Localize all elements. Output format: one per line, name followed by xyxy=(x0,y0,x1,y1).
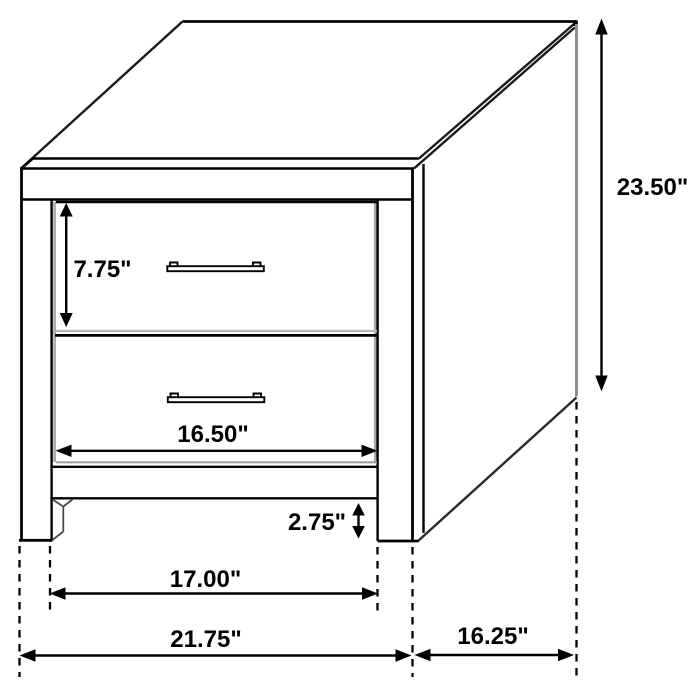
svg-text:16.50": 16.50" xyxy=(177,421,248,448)
svg-text:21.75": 21.75" xyxy=(170,626,241,653)
svg-text:23.50": 23.50" xyxy=(617,174,688,201)
svg-text:7.75": 7.75" xyxy=(73,256,131,283)
svg-text:17.00": 17.00" xyxy=(170,566,241,593)
svg-text:16.25": 16.25" xyxy=(457,623,528,650)
svg-text:2.75": 2.75" xyxy=(288,509,346,536)
